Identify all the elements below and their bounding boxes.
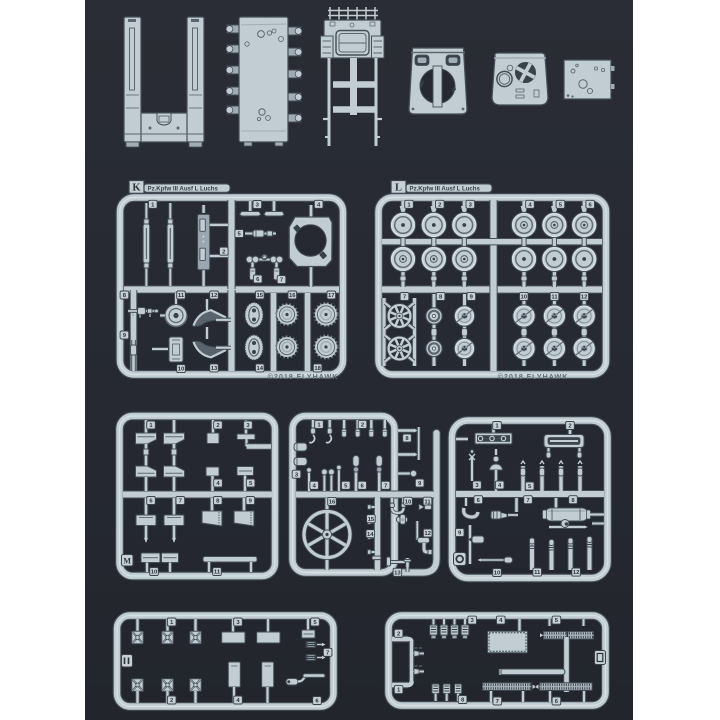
svg-text:16: 16 <box>329 500 336 506</box>
svg-text:12: 12 <box>211 293 218 299</box>
svg-text:13: 13 <box>394 570 401 576</box>
svg-text:©2018 FLYHAWK: ©2018 FLYHAWK <box>498 372 569 381</box>
svg-text:13: 13 <box>211 366 218 372</box>
svg-text:11: 11 <box>551 295 558 301</box>
svg-text:L: L <box>395 183 402 194</box>
svg-text:M: M <box>123 556 131 565</box>
svg-text:14: 14 <box>367 532 374 538</box>
svg-text:Pz.Kpfw III Ausf L Luchs: Pz.Kpfw III Ausf L Luchs <box>148 185 219 192</box>
svg-text:Pz.Kpfw III Ausf L Luchs: Pz.Kpfw III Ausf L Luchs <box>410 185 481 192</box>
svg-text:10: 10 <box>521 295 528 301</box>
svg-text:12: 12 <box>424 531 431 537</box>
svg-text:11: 11 <box>534 570 541 576</box>
svg-text:10: 10 <box>151 570 158 576</box>
svg-text:10: 10 <box>178 367 185 373</box>
svg-text:10: 10 <box>405 499 412 505</box>
svg-text:16: 16 <box>289 293 296 299</box>
svg-text:14: 14 <box>257 366 264 372</box>
svg-text:15: 15 <box>257 293 264 299</box>
svg-text:11: 11 <box>214 570 221 576</box>
svg-text:K: K <box>132 183 141 194</box>
svg-text:10: 10 <box>494 571 501 577</box>
svg-text:11: 11 <box>178 293 185 299</box>
svg-text:17: 17 <box>328 293 335 299</box>
svg-text:15: 15 <box>368 517 375 523</box>
svg-text:12: 12 <box>581 295 588 301</box>
svg-text:12: 12 <box>573 570 580 576</box>
svg-text:©2018 FLYHAWK: ©2018 FLYHAWK <box>268 372 339 381</box>
